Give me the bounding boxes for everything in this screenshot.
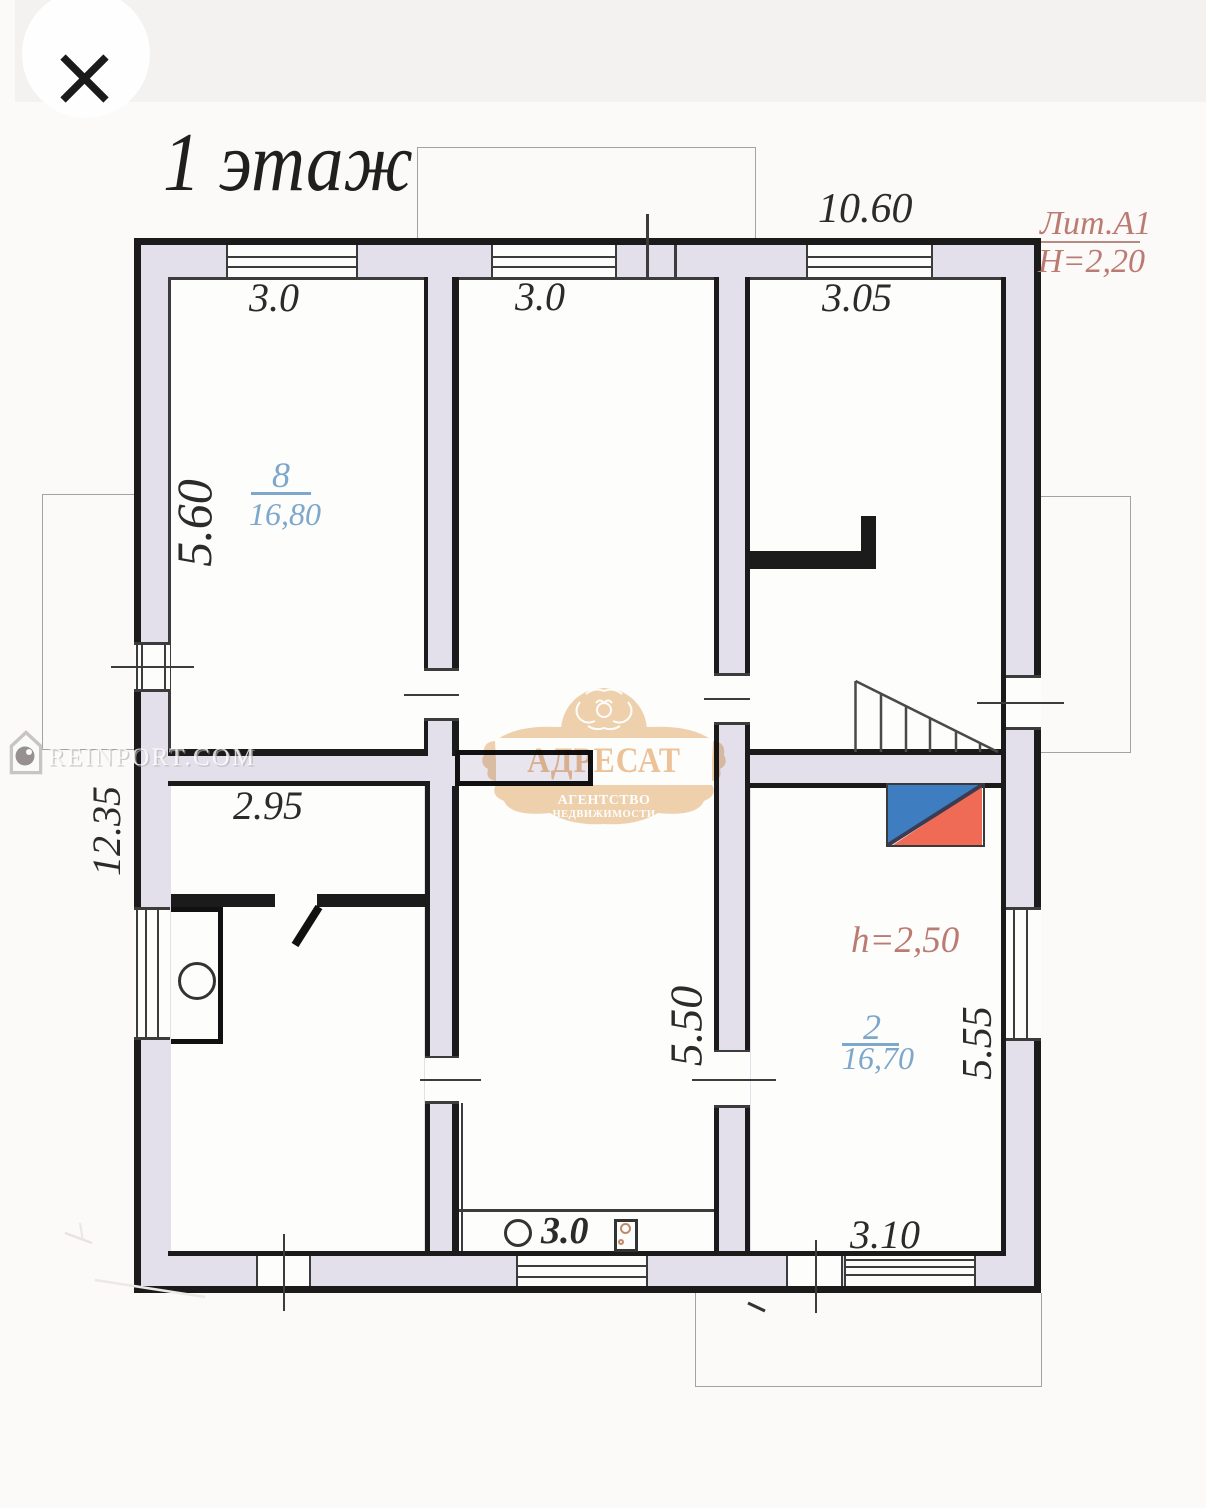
svg-text:REINPORT.COM: REINPORT.COM — [48, 744, 256, 771]
svg-text:АГЕНТСТВО: АГЕНТСТВО — [558, 793, 651, 808]
svg-text:АДРЕСАТ: АДРЕСАТ — [527, 741, 681, 780]
svg-text:НЕДВИЖИМОСТИ: НЕДВИЖИМОСТИ — [552, 809, 655, 820]
